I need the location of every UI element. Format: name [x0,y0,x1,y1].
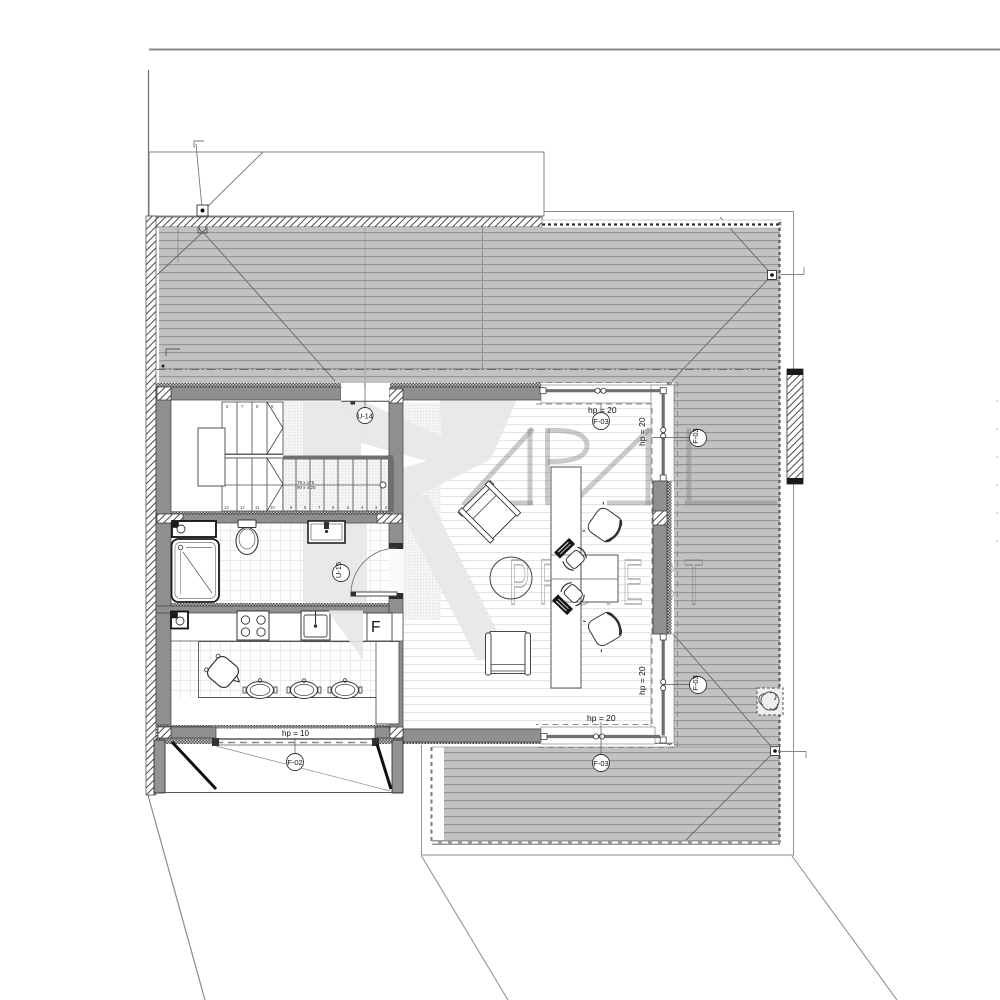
svg-text:hp = 20: hp = 20 [637,666,647,695]
svg-text:90 x 4.25: 90 x 4.25 [297,485,316,490]
svg-text:11: 11 [255,505,260,510]
svg-text:F: F [371,619,380,636]
svg-text:12: 12 [240,505,245,510]
svg-text:hp = 20: hp = 20 [637,417,647,446]
svg-text:F-03: F-03 [593,417,608,426]
svg-text:hp = 10: hp = 10 [282,729,309,738]
svg-text:13: 13 [224,505,229,510]
svg-text:U-14: U-14 [357,412,373,421]
svg-text:10: 10 [270,505,275,510]
svg-text:F-03: F-03 [691,675,700,690]
svg-text:F-03: F-03 [691,428,700,443]
svg-text:F-03: F-03 [593,759,608,768]
svg-text:F-02: F-02 [287,758,302,767]
svg-text:U-15: U-15 [334,562,343,578]
svg-text:hp = 20: hp = 20 [587,713,616,723]
